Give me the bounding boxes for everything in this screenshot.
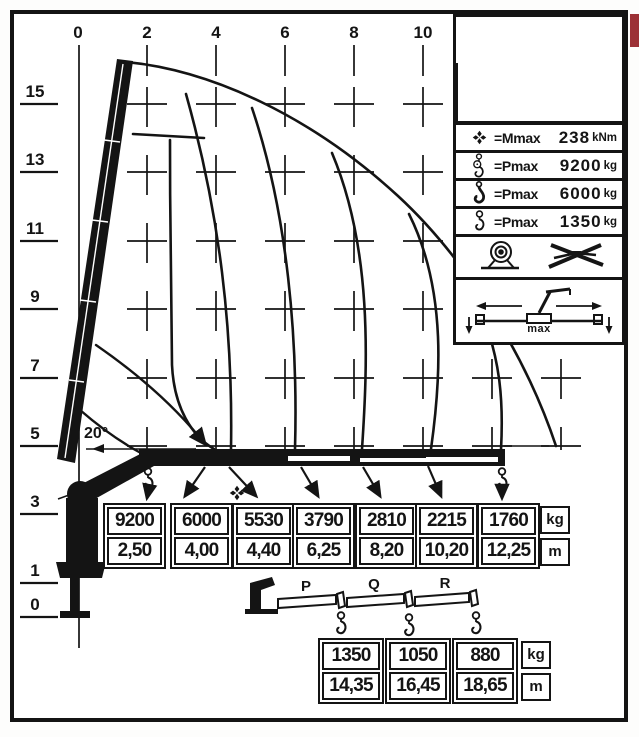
hook-icon: [405, 614, 413, 635]
unit-kg: kg: [521, 641, 551, 669]
y-axis-labels: 15 13 11 9 7 5 3 1 0: [26, 82, 45, 614]
mmax-symbol: [464, 130, 494, 145]
svg-text:2: 2: [142, 23, 151, 42]
jib-section-labels: P Q R: [301, 575, 451, 595]
crane-load-diagram: 0 2 4 6 8 10 15 13 11 9 7 5 3 1 0: [0, 0, 639, 737]
hook-single-icon: [464, 181, 494, 207]
capacity-box: 1760 12,25: [477, 503, 540, 569]
load-value: 880: [456, 642, 514, 670]
hook-double-icon: [464, 153, 494, 179]
load-value: 9200: [107, 507, 162, 535]
load-value: 3790: [296, 507, 351, 535]
svg-text:5: 5: [30, 424, 39, 443]
radius-value: 6,25: [296, 537, 351, 565]
jib-capacity-box: 1050 16,45: [385, 638, 451, 704]
capacity-box: 6000 4,00: [170, 503, 233, 569]
svg-text:7: 7: [30, 356, 39, 375]
capacity-box: 5530 4,40: [232, 503, 295, 569]
svg-text:0: 0: [73, 23, 82, 42]
unit-m: m: [521, 673, 551, 701]
hook-icon: [144, 468, 152, 489]
capacity-box: 2215 10,20: [415, 503, 478, 569]
svg-text:11: 11: [26, 219, 44, 238]
unit-m: m: [540, 538, 570, 566]
radius-value: 4,00: [174, 537, 229, 565]
radius-value: 12,25: [481, 537, 536, 565]
load-value: 1350: [322, 642, 380, 670]
legend-row-pmax-jib: =Pmax 1350 kg: [456, 209, 622, 237]
svg-text:10: 10: [414, 23, 433, 42]
hook-jib-icon: [464, 210, 494, 233]
svg-text:1: 1: [30, 561, 39, 580]
svg-text:4: 4: [211, 23, 221, 42]
legend-row-pmax-hook: =Pmax 6000 kg: [456, 181, 622, 209]
radius-value: 4,40: [236, 537, 291, 565]
load-value: 2810: [359, 507, 414, 535]
stabilizer-spread-diagram: max: [456, 281, 622, 339]
radius-value: 2,50: [107, 537, 162, 565]
capacity-box: 9200 2,50: [103, 503, 166, 569]
svg-text:6: 6: [280, 23, 289, 42]
svg-text:P: P: [301, 578, 311, 595]
capacity-arrows: [147, 466, 502, 498]
svg-text:13: 13: [26, 150, 45, 169]
luffing-arc: [96, 345, 205, 444]
jib-capacity-box: 1350 14,35: [318, 638, 384, 704]
legend-row-pmax-main: =Pmax 9200 kg: [456, 153, 622, 181]
svg-text:20°: 20°: [84, 425, 108, 442]
svg-text:R: R: [440, 575, 451, 592]
jib-diagram: P Q R: [245, 575, 480, 635]
legend-row-mmax: =Mmax 238 kNm: [456, 125, 622, 153]
load-value: 1760: [481, 507, 536, 535]
crossed-out-jib-icon: [546, 240, 604, 275]
load-value: 6000: [174, 507, 229, 535]
svg-text:0: 0: [30, 595, 39, 614]
load-value: 5530: [236, 507, 291, 535]
svg-text:3: 3: [30, 492, 39, 511]
load-value: 1050: [389, 642, 447, 670]
hook-icon: [337, 612, 345, 633]
svg-text:9: 9: [30, 287, 39, 306]
radius-value: 8,20: [359, 537, 414, 565]
load-value: 2215: [419, 507, 474, 535]
legend-box: =Mmax 238 kNm =Pmax 9200 kg: [453, 14, 625, 345]
stabilizer-max-label: max: [527, 323, 551, 335]
legend-blank-panel: [456, 17, 622, 125]
winch-icon: [475, 239, 521, 276]
radius-value: 10,20: [419, 537, 474, 565]
svg-text:15: 15: [26, 82, 45, 101]
jib-capacity-box: 880 18,65: [452, 638, 518, 704]
svg-text:Q: Q: [368, 576, 380, 593]
hook-icon: [498, 468, 506, 489]
unit-kg: kg: [540, 506, 570, 534]
capacity-box: 3790 6,25: [292, 503, 355, 569]
capacity-box: 2810 8,20: [355, 503, 418, 569]
radius-value: 18,65: [456, 672, 514, 700]
radius-value: 14,35: [322, 672, 380, 700]
hook-icon: [472, 612, 480, 633]
x-axis-labels: 0 2 4 6 8 10: [73, 23, 432, 42]
svg-text:8: 8: [349, 23, 358, 42]
radius-value: 16,45: [389, 672, 447, 700]
legend-equipment-icons: [456, 237, 622, 280]
mmax-symbol: [230, 486, 244, 500]
